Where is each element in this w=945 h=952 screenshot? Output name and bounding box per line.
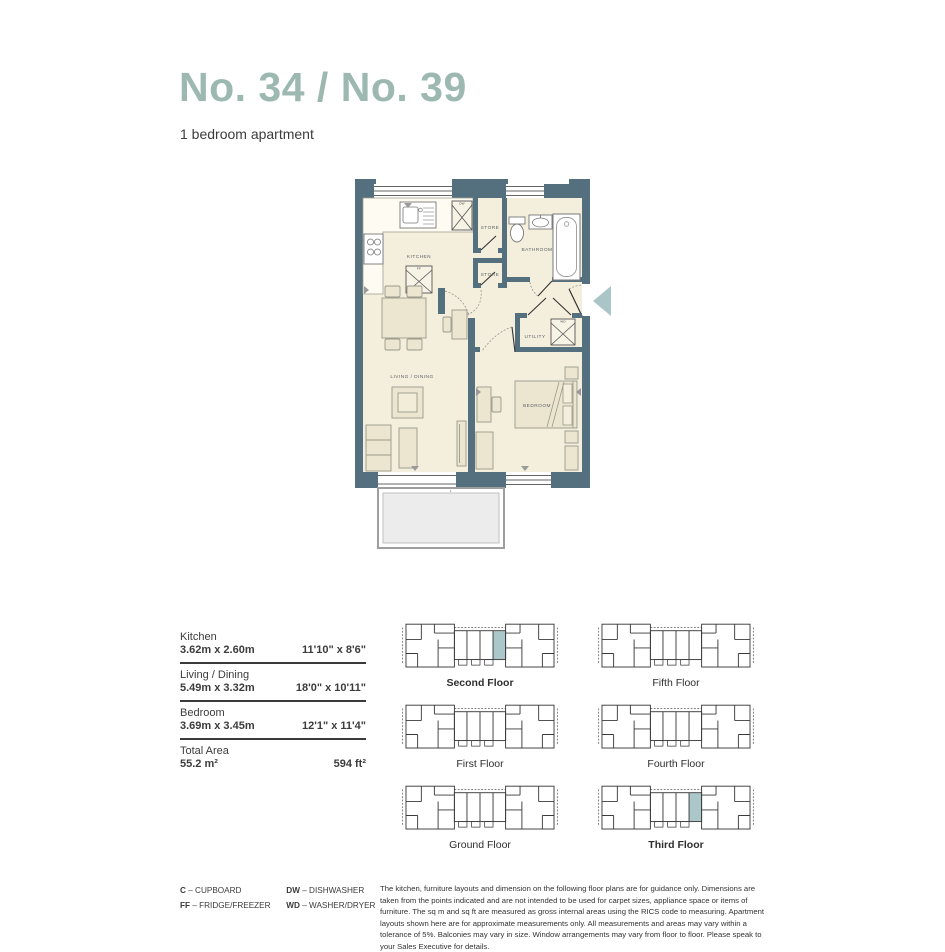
mini-floorplan bbox=[592, 782, 760, 836]
floor-label: Second Floor bbox=[396, 677, 564, 689]
floor-label: First Floor bbox=[396, 758, 564, 770]
bedroom-label: BEDROOM bbox=[523, 403, 551, 409]
living-label: LIVING / DINING bbox=[390, 374, 433, 380]
nightstand-bottom bbox=[565, 431, 578, 443]
hall-wall-stub bbox=[438, 288, 445, 314]
locator-fourth-floor: Fourth Floor bbox=[592, 701, 760, 770]
imperial-dims: 18'0" x 10'11" bbox=[296, 682, 366, 694]
locator-fifth-floor: Fifth Floor bbox=[592, 620, 760, 689]
dims-row-name: Living / Dining bbox=[180, 669, 366, 681]
dims-row-values: 3.69m x 3.45m 12'1" x 11'4" bbox=[180, 720, 366, 732]
divider-wall bbox=[468, 318, 475, 472]
bathroom-window bbox=[506, 184, 544, 198]
utility-label: UTILITY bbox=[524, 334, 545, 340]
disclaimer-text: The kitchen, furniture layouts and dimen… bbox=[380, 883, 772, 952]
bedroom-wall-stub bbox=[468, 347, 480, 352]
metric-dims: 5.49m x 3.32m bbox=[180, 682, 255, 694]
washer-dryer-icon: WD bbox=[551, 319, 575, 345]
wardrobe bbox=[476, 432, 493, 469]
mini-floorplan bbox=[396, 782, 564, 836]
sofa bbox=[366, 425, 391, 471]
dimensions-table: Kitchen 3.62m x 2.60m 11'10" x 8'6" Livi… bbox=[180, 626, 366, 776]
imperial-dims: 594 ft² bbox=[334, 758, 366, 770]
store-lower-label: STORE bbox=[481, 272, 500, 278]
basin-icon bbox=[529, 215, 552, 229]
floorplan-drawing: DW FF KITCHEN STORE STORE bbox=[340, 170, 630, 570]
wd-tag: WD bbox=[560, 320, 566, 324]
bedroom-cabinet bbox=[565, 446, 578, 470]
floor-locator: Second Floor Fifth Floor First Floor Fou… bbox=[396, 620, 776, 863]
floor-label: Fifth Floor bbox=[592, 677, 760, 689]
mini-floorplan bbox=[396, 701, 564, 755]
page-title: No. 34 / No. 39 bbox=[179, 64, 467, 111]
metric-dims: 3.69m x 3.45m bbox=[180, 720, 255, 732]
bathtub-icon bbox=[553, 214, 580, 280]
table-divider bbox=[180, 662, 366, 664]
dishwasher-icon: DW bbox=[452, 201, 472, 230]
dims-row-name: Kitchen bbox=[180, 631, 366, 643]
nightstand-top bbox=[565, 367, 578, 379]
imperial-dims: 12'1" x 11'4" bbox=[302, 720, 366, 732]
locator-third-floor: Third Floor bbox=[592, 782, 760, 851]
store-upper-label: STORE bbox=[481, 225, 500, 231]
legend-item-fridge-freezer: FF – FRIDGE/FREEZER bbox=[180, 901, 284, 910]
unit-highlight bbox=[494, 631, 506, 659]
table-divider bbox=[180, 700, 366, 702]
hob-icon bbox=[364, 234, 383, 264]
metric-dims: 3.62m x 2.60m bbox=[180, 644, 255, 656]
locator-second-floor: Second Floor bbox=[396, 620, 564, 689]
mini-floorplan bbox=[396, 620, 564, 674]
bedroom-window bbox=[506, 472, 551, 488]
tv-unit bbox=[457, 421, 466, 466]
sink-icon bbox=[400, 202, 436, 228]
imperial-dims: 11'10" x 8'6" bbox=[302, 644, 366, 656]
dims-row-name: Bedroom bbox=[180, 707, 366, 719]
floor-label: Fourth Floor bbox=[592, 758, 760, 770]
balcony bbox=[378, 488, 504, 548]
apartment-floorplan: DW FF KITCHEN STORE STORE bbox=[340, 170, 630, 575]
table-divider bbox=[180, 738, 366, 740]
metric-dims: 55.2 m² bbox=[180, 758, 218, 770]
page-subtitle: 1 bedroom apartment bbox=[180, 126, 314, 142]
floor-label: Ground Floor bbox=[396, 839, 564, 851]
entry-arrow-icon bbox=[593, 286, 611, 316]
legend-item-washer-dryer: WD – WASHER/DRYER bbox=[286, 901, 375, 910]
armchair bbox=[392, 387, 423, 418]
mini-floorplan bbox=[592, 701, 760, 755]
locator-first-floor: First Floor bbox=[396, 701, 564, 770]
legend-item-dishwasher: DW – DISHWASHER bbox=[286, 886, 375, 895]
dims-row-values: 3.62m x 2.60m 11'10" x 8'6" bbox=[180, 644, 366, 656]
locator-ground-floor: Ground Floor bbox=[396, 782, 564, 851]
unit-highlight bbox=[690, 793, 702, 821]
dims-row-values: 5.49m x 3.32m 18'0" x 10'11" bbox=[180, 682, 366, 694]
bathroom-label: BATHROOM bbox=[522, 247, 553, 253]
kitchen-window bbox=[374, 184, 452, 198]
dw-tag: DW bbox=[459, 202, 465, 206]
kitchen-label: KITCHEN bbox=[407, 254, 431, 260]
dims-row-values: 55.2 m² 594 ft² bbox=[180, 758, 366, 770]
legend-item-cupboard: C – CUPBOARD bbox=[180, 886, 284, 895]
mini-floorplan bbox=[592, 620, 760, 674]
floor-label: Third Floor bbox=[592, 839, 760, 851]
dims-row-name: Total Area bbox=[180, 745, 366, 757]
coffee-table bbox=[399, 428, 417, 468]
abbreviation-legend: C – CUPBOARD FF – FRIDGE/FREEZER DW – DI… bbox=[180, 886, 375, 916]
toilet-icon bbox=[509, 217, 525, 242]
ff-tag: FF bbox=[417, 267, 421, 271]
